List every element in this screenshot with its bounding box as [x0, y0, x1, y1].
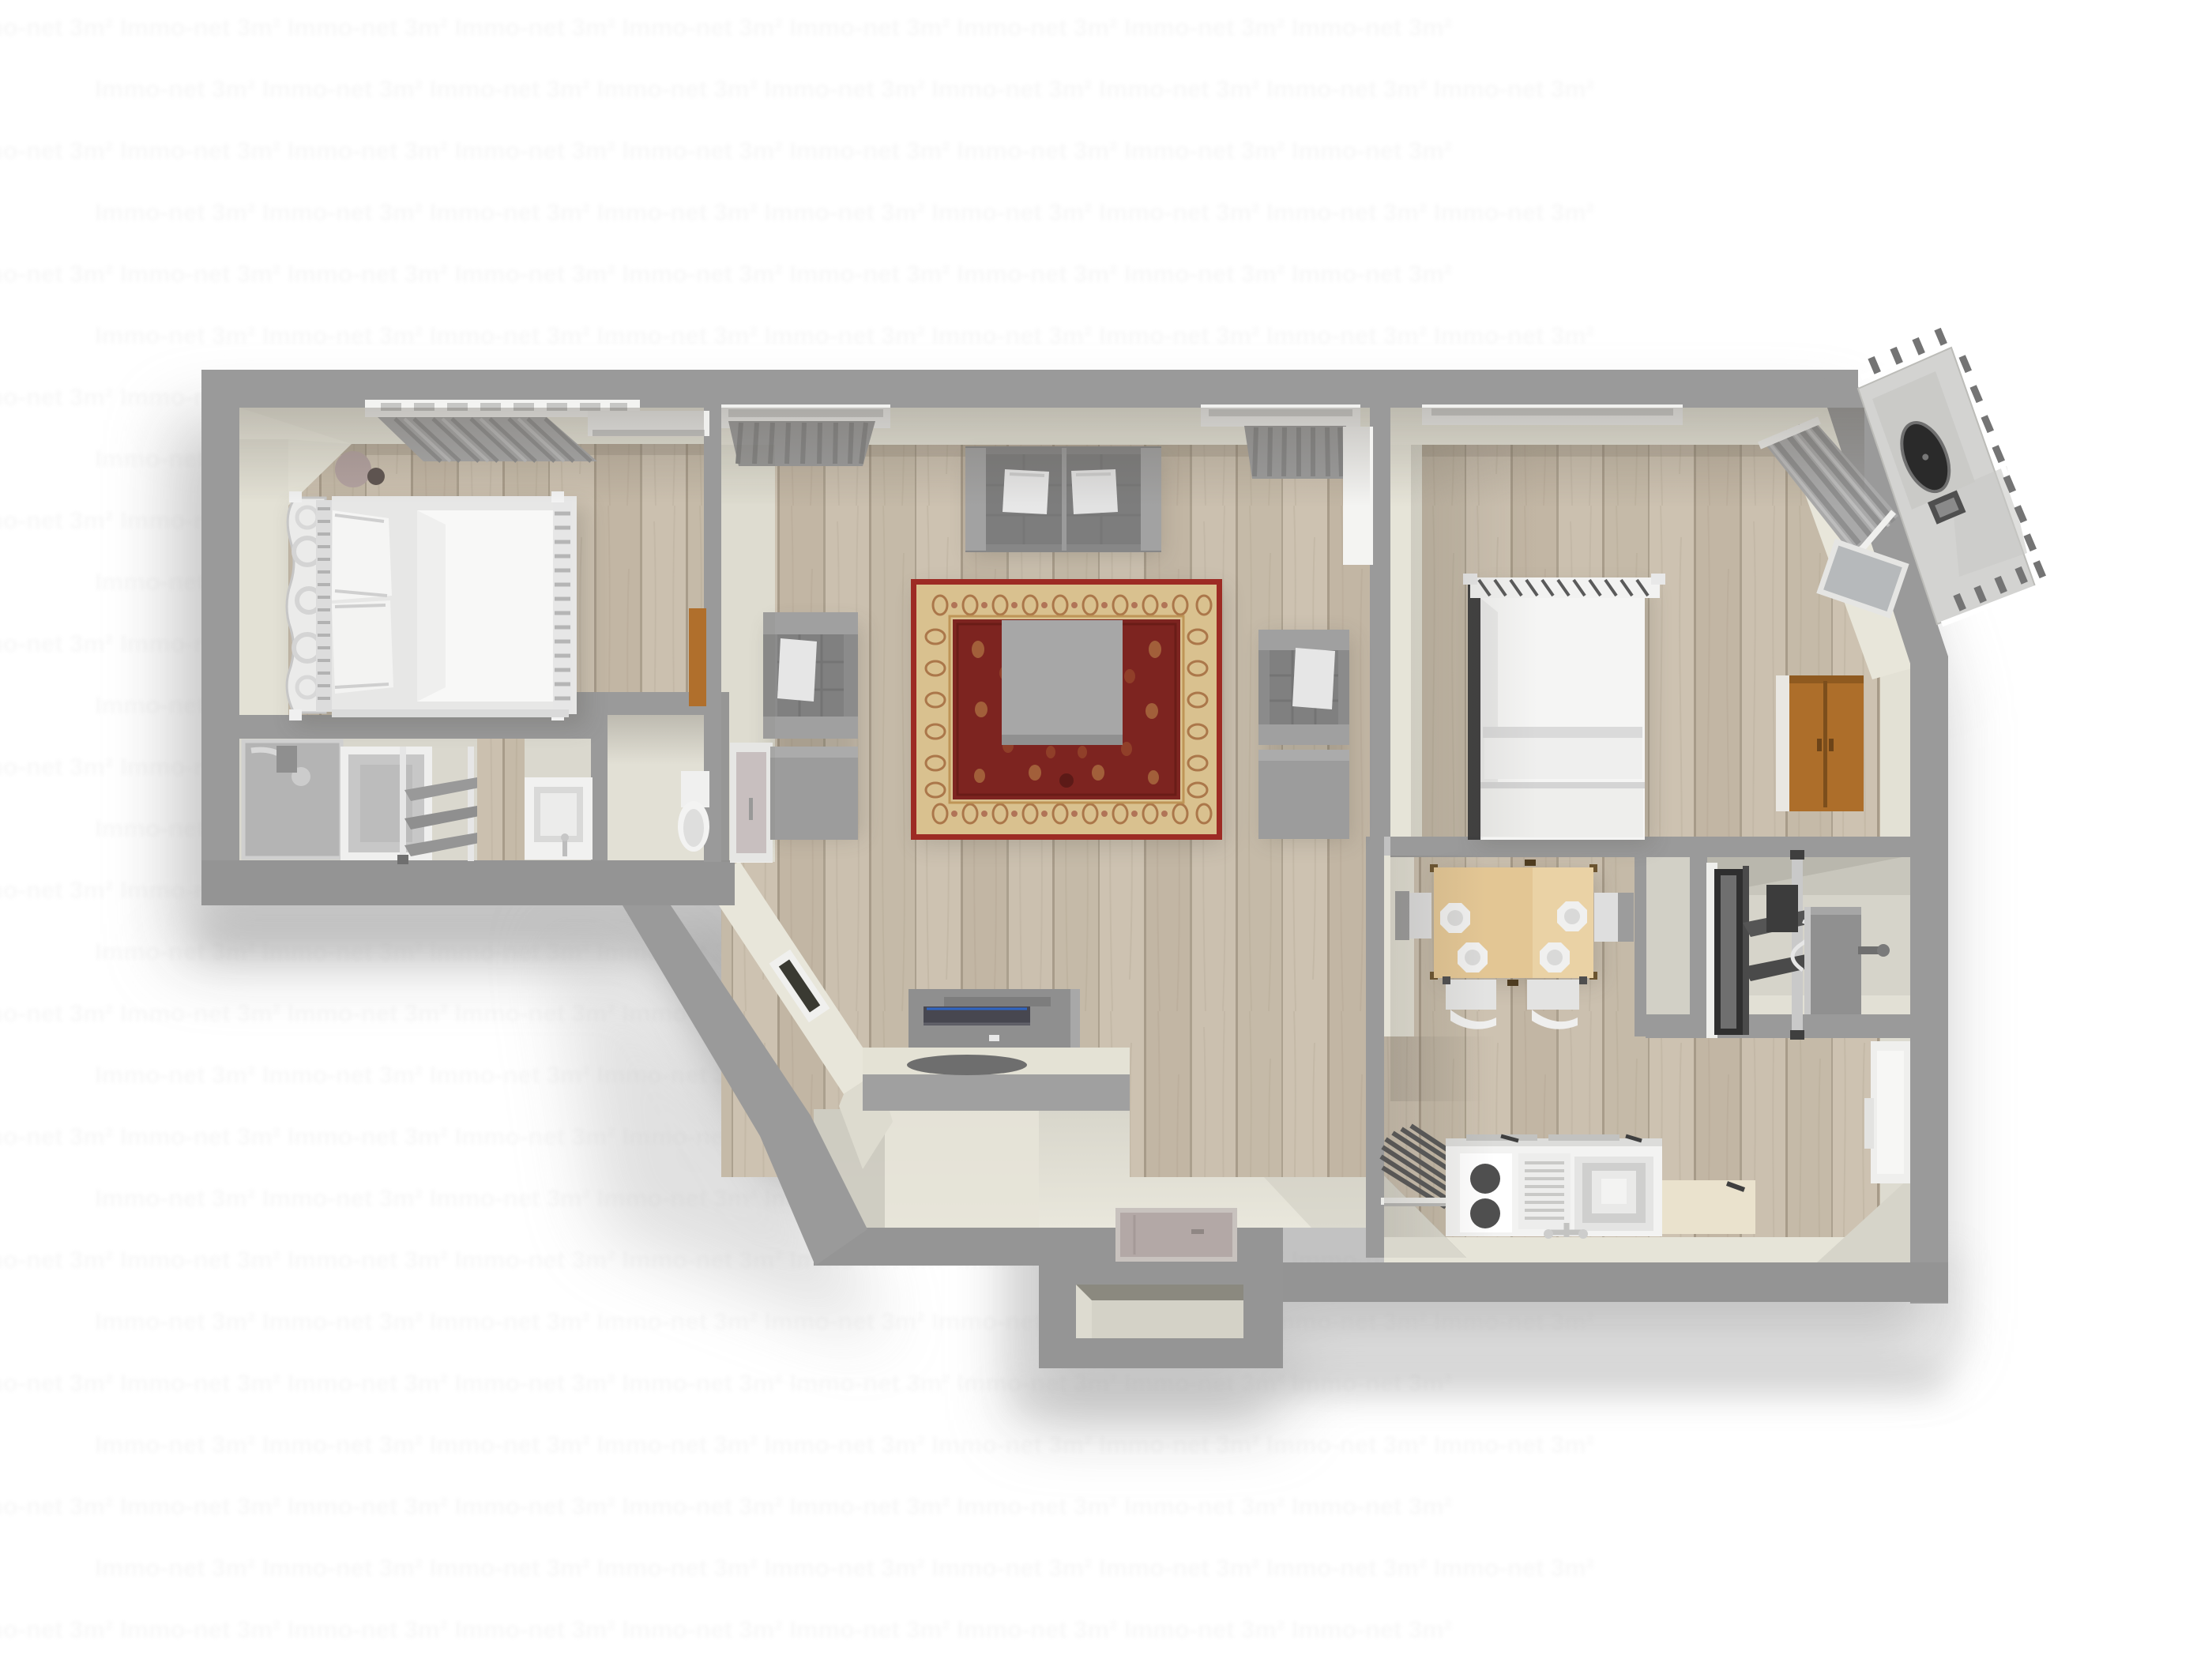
svg-text:Immo-net 3m² Immo-net 3m²: Immo-net 3m² Immo-net 3m² Immo-net 3m² I… [95, 75, 1594, 103]
svg-text:Immo-net 3m² Immo-net 3m²: Immo-net 3m² Immo-net 3m² Immo-net 3m² I… [0, 137, 1452, 164]
svg-text:Immo-net 3m² Immo-net 3m²: Immo-net 3m² Immo-net 3m² Immo-net 3m² I… [95, 322, 1594, 349]
svg-text:Immo-net 3m² Immo-net 3m²: Immo-net 3m² Immo-net 3m² Immo-net 3m² I… [0, 1492, 1452, 1520]
svg-text:Immo-net 3m² Immo-net 3m²: Immo-net 3m² Immo-net 3m² Immo-net 3m² I… [0, 13, 1452, 41]
svg-text:Immo-net 3m² Immo-net 3m²: Immo-net 3m² Immo-net 3m² Immo-net 3m² I… [0, 1616, 1452, 1643]
svg-text:Immo-net 3m² Immo-net 3m²: Immo-net 3m² Immo-net 3m² Immo-net 3m² I… [95, 198, 1594, 226]
svg-text:Immo-net 3m² Immo-net 3m²: Immo-net 3m² Immo-net 3m² Immo-net 3m² I… [95, 1554, 1594, 1582]
svg-text:Immo-net 3m² Immo-net 3m²: Immo-net 3m² Immo-net 3m² Immo-net 3m² I… [95, 1431, 1594, 1458]
svg-text:Immo-net 3m² Immo-net 3m²: Immo-net 3m² Immo-net 3m² Immo-net 3m² I… [0, 260, 1452, 288]
